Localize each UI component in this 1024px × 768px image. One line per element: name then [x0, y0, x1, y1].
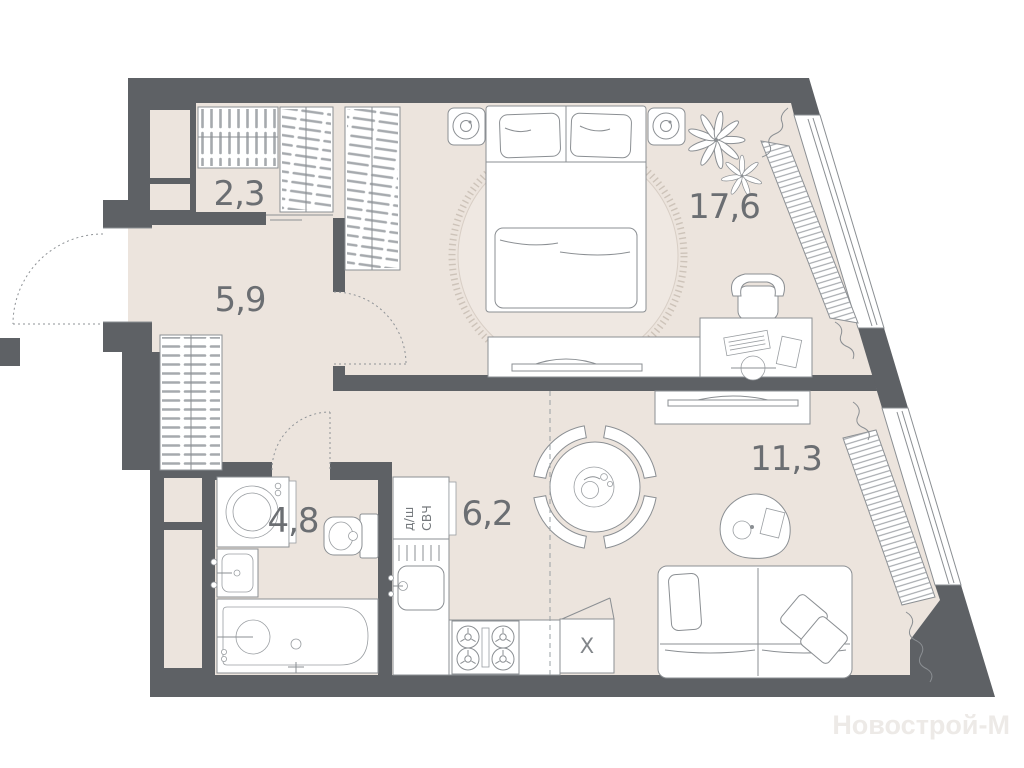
- tub-drain: [291, 639, 301, 649]
- pillow-right: [570, 113, 631, 158]
- toilet: [324, 514, 378, 558]
- living-tv-console: [655, 391, 810, 424]
- nightstand-right: [648, 108, 685, 145]
- bathroom-sink: [211, 549, 258, 597]
- bed: [486, 106, 646, 312]
- living-area-label: 11,3: [750, 439, 822, 479]
- kitchen-area-label: 6,2: [461, 494, 512, 534]
- wall-stub-upper: [333, 218, 345, 292]
- entry-door-arc: [13, 234, 103, 324]
- bathtub: [217, 599, 378, 673]
- shaft-niche-3: [164, 478, 202, 522]
- wardrobe-area-label: 2,3: [213, 174, 264, 214]
- wall-bath-right: [378, 462, 392, 675]
- bedroom-area-label: 17,6: [688, 187, 760, 227]
- wall-outside-stub: [0, 338, 20, 366]
- sofa: [658, 566, 852, 678]
- floor-plan-canvas: X д/ш СВЧ: [0, 0, 1024, 768]
- sofa-pillow-left: [668, 573, 702, 631]
- bathroom-area-label: 4,8: [267, 501, 318, 541]
- stove: [452, 621, 519, 674]
- cup: [733, 521, 751, 539]
- table-vase: [574, 467, 614, 507]
- microwave-label: СВЧ: [419, 505, 434, 531]
- watermark: Новострой-М: [832, 710, 1010, 740]
- shaft-niche-4: [164, 530, 202, 668]
- kitchen-counter-left: [388, 539, 449, 675]
- lamp-right: [653, 113, 679, 139]
- blanket: [495, 228, 637, 308]
- floor-plan-page: X д/ш СВЧ: [0, 0, 1024, 768]
- shaft-niche-1: [150, 110, 190, 178]
- wardrobe-23-left-section: [198, 107, 278, 168]
- wall-entry-lower: [103, 322, 152, 352]
- wardrobe-23-right-section: [280, 107, 333, 212]
- dishwasher-label: д/ш: [401, 507, 416, 531]
- hallway-area-label: 5,9: [214, 280, 265, 320]
- desk-chair: [732, 274, 785, 320]
- wall-hall-left: [122, 352, 160, 470]
- fridge-label: X: [580, 634, 594, 658]
- wall-stub-lower: [333, 366, 345, 391]
- hallway-wardrobe: [160, 335, 222, 470]
- lamp-left: [453, 113, 479, 139]
- living-tv: [668, 400, 798, 406]
- bedroom-tv: [512, 364, 642, 371]
- bedroom-tv-console: [488, 337, 700, 377]
- shaft-niche-2: [150, 184, 190, 210]
- toilet-tank: [360, 514, 378, 558]
- pillow-left: [499, 113, 560, 158]
- wall-entry-upper: [103, 200, 152, 228]
- nightstand-left: [448, 108, 485, 145]
- bedroom-wardrobe: [345, 107, 400, 270]
